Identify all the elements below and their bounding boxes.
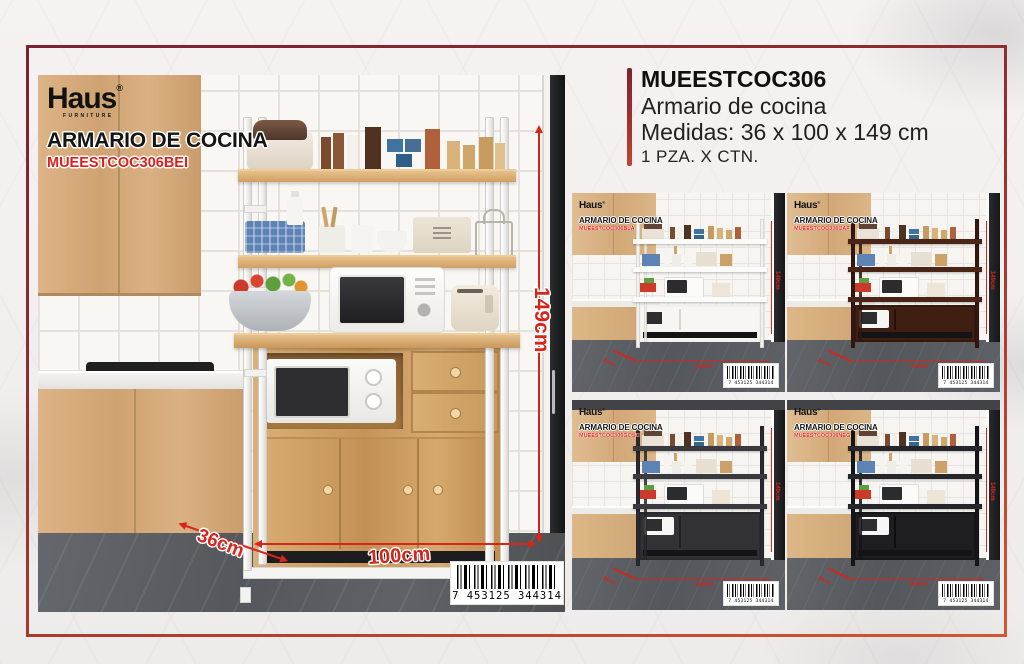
brand-name: Haus (794, 407, 817, 418)
door-knob (323, 485, 333, 495)
microwave-oven-lower (859, 517, 889, 535)
rack-shelf (633, 267, 767, 272)
variant-card-negro: 149cm 100cm 36cm Haus® ARMARIO DE COCINA… (787, 400, 1000, 610)
microwave-oven-upper (879, 484, 919, 506)
rack-lower-cabinet (854, 512, 976, 560)
product-sku: MUEESTCOC306GOSC (579, 433, 663, 439)
product-title: ARMARIO DE COCINA (47, 129, 268, 153)
white-bottle (287, 197, 303, 225)
microwave-knob (365, 369, 382, 386)
utensil-crock (319, 225, 345, 253)
barcode: 7 453125 344314 (938, 581, 994, 606)
width-dimension-line (853, 361, 985, 363)
brand-name: Haus (47, 82, 116, 115)
width-dimension-label: 100cm (695, 581, 714, 588)
width-dimension-line (638, 361, 770, 363)
barcode-bars (727, 366, 775, 379)
kitchen-rack-illustration: 149cm 100cm 36cm (851, 426, 979, 566)
height-dimension-label: 149cm (774, 271, 780, 290)
width-dimension-label: 100cm (367, 543, 431, 570)
microwave-oven-upper (664, 277, 704, 299)
registered-mark: ® (817, 407, 820, 412)
kitchen-countertop (38, 371, 250, 391)
main-card-branding: Haus® FURNITURE ARMARIO DE COCINA MUEEST… (47, 84, 268, 171)
product-title: ARMARIO DE COCINA (794, 216, 878, 225)
info-product-name: Armario de cocina (641, 93, 1001, 119)
barcode-bars (942, 584, 990, 597)
dark-door (774, 400, 785, 560)
accent-bar (627, 68, 632, 166)
rack-shelf (848, 267, 982, 272)
kitchen-rack-illustration (243, 117, 511, 585)
door-knob (433, 485, 443, 495)
barcode-digits: 7 453125 344314 (939, 599, 993, 604)
dark-door (774, 193, 785, 342)
rack-countertop (848, 504, 982, 509)
barcode-bars (727, 584, 775, 597)
brand-name: Haus (794, 200, 817, 211)
microwave-oven-upper (664, 484, 704, 506)
toaster (451, 285, 499, 331)
registered-mark: ® (817, 200, 820, 205)
catalog-page: 149cm 100cm 36cm Haus® FURNITURE ARMARIO… (0, 0, 1024, 664)
product-sku: MUEESTCOC306BLA (579, 226, 663, 232)
microwave-oven-lower (859, 310, 889, 328)
brand-logo: Haus® (579, 408, 663, 418)
white-jar (351, 225, 373, 253)
product-title: ARMARIO DE COCINA (579, 423, 663, 432)
height-dimension-label: 149cm (529, 287, 553, 352)
product-sku: MUEESTCOC306BEI (47, 155, 268, 171)
variant-card-cafe: 149cm 100cm 36cm Haus® ARMARIO DE COCINA… (787, 193, 1000, 392)
rack-open-compartment (261, 353, 403, 429)
white-bowl (377, 231, 407, 253)
rack-shelf (633, 446, 767, 451)
rack-shelf (633, 474, 767, 479)
kitchen-rack-illustration: 149cm 100cm 36cm (636, 426, 764, 566)
variant-card-blanco: 149cm 100cm 36cm Haus® ARMARIO DE COCINA… (572, 193, 785, 392)
height-dimension-line (986, 221, 988, 334)
rack-countertop (234, 333, 520, 348)
brand-name: Haus (579, 407, 602, 418)
height-dimension-line (986, 428, 988, 552)
brand-logo: Haus® (47, 84, 268, 114)
microwave-knob (365, 393, 382, 410)
barcode-bars (457, 565, 557, 589)
microwave-control-panel (412, 276, 438, 322)
brand-logo: Haus® (794, 408, 878, 418)
rack-countertop (633, 504, 767, 509)
info-packing: 1 PZA. X CTN. (641, 145, 1001, 168)
width-dimension-line (638, 579, 770, 581)
product-title: ARMARIO DE COCINA (579, 216, 663, 225)
microwave-window (338, 275, 406, 325)
rack-rung (244, 369, 267, 377)
height-dimension-label: 149cm (989, 271, 995, 290)
width-dimension-line (853, 579, 985, 581)
rack-shelf (848, 474, 982, 479)
kitchen-lower-cabinet (38, 389, 246, 535)
width-dimension-label: 100cm (910, 363, 929, 370)
info-measures: Medidas: 36 x 100 x 149 cm (641, 119, 1001, 145)
door-handle (552, 370, 555, 414)
brand-name: Haus (579, 200, 602, 211)
rack-rung (244, 205, 267, 213)
barcode-digits: 7 453125 344314 (724, 599, 778, 604)
blue-basket (245, 221, 305, 253)
storage-bin (413, 217, 471, 253)
registered-mark: ® (602, 407, 605, 412)
rack-shelf (238, 169, 516, 182)
variant-branding: Haus® ARMARIO DE COCINA MUEESTCOC306BLA (579, 201, 663, 232)
barcode-digits: 7 453125 344314 (724, 381, 778, 386)
height-dimension-label: 149cm (774, 482, 780, 501)
height-dimension-line (771, 428, 773, 552)
barcode: 7 453125 344314 (938, 363, 994, 388)
barcode: 7 453125 344314 (723, 363, 779, 388)
height-dimension-label: 149cm (989, 482, 995, 501)
microwave-oven-lower (644, 310, 674, 328)
registered-mark: ® (116, 83, 122, 93)
shelf-items (642, 246, 758, 266)
shelf-items (857, 453, 973, 473)
product-title: ARMARIO DE COCINA (794, 423, 878, 432)
variant-branding: Haus® ARMARIO DE COCINA MUEESTCOC306CAF (794, 201, 878, 232)
rack-lower-cabinet (639, 512, 761, 560)
height-dimension-line (771, 221, 773, 334)
rack-shelf (848, 446, 982, 451)
dark-door (989, 400, 1000, 560)
rack-countertop (848, 297, 982, 302)
product-info: MUEESTCOC306 Armario de cocina Medidas: … (641, 66, 1001, 168)
brand-subtitle: FURNITURE (63, 113, 268, 119)
rack-countertop (633, 297, 767, 302)
rack-lower-cabinet (639, 305, 761, 342)
egg-basket (475, 221, 513, 257)
brand-logo: Haus® (794, 201, 878, 211)
info-sku: MUEESTCOC306 (641, 66, 1001, 93)
dark-door (989, 193, 1000, 342)
spice-jars (321, 123, 507, 169)
rack-lower-cabinet (253, 345, 501, 573)
variant-card-gris-oscuro: 149cm 100cm 36cm Haus® ARMARIO DE COCINA… (572, 400, 785, 610)
barcode-digits: 7 453125 344314 (451, 590, 563, 602)
microwave-oven-upper (329, 267, 445, 333)
registered-mark: ® (602, 200, 605, 205)
shelf-items (857, 246, 973, 266)
width-dimension-label: 100cm (695, 363, 714, 370)
variant-branding: Haus® ARMARIO DE COCINA MUEESTCOC306NEG (794, 408, 878, 439)
product-sku: MUEESTCOC306CAF (794, 226, 878, 232)
barcode-bars (942, 366, 990, 379)
variant-branding: Haus® ARMARIO DE COCINA MUEESTCOC306GOSC (579, 408, 663, 439)
barcode-digits: 7 453125 344314 (939, 381, 993, 386)
kitchen-rack-illustration: 149cm 100cm 36cm (636, 219, 764, 348)
shelf-items (642, 453, 758, 473)
rack-cabinet-doors (261, 437, 495, 549)
brand-logo: Haus® (579, 201, 663, 211)
microwave-oven-lower (644, 517, 674, 535)
microwave-oven-lower (266, 359, 396, 423)
rack-shelf (633, 239, 767, 244)
main-product-photo: 149cm 100cm 36cm Haus® FURNITURE ARMARIO… (38, 75, 565, 612)
rack-shelf (848, 239, 982, 244)
barcode: 7 453125 344314 (450, 561, 564, 605)
barcode: 7 453125 344314 (723, 581, 779, 606)
microwave-window (274, 366, 350, 418)
door-knob (403, 485, 413, 495)
rack-foot (240, 587, 251, 603)
kitchen-rack-illustration: 149cm 100cm 36cm (851, 219, 979, 348)
width-dimension-label: 100cm (910, 581, 929, 588)
product-sku: MUEESTCOC306NEG (794, 433, 878, 439)
rack-lower-cabinet (854, 305, 976, 342)
microwave-oven-upper (879, 277, 919, 299)
